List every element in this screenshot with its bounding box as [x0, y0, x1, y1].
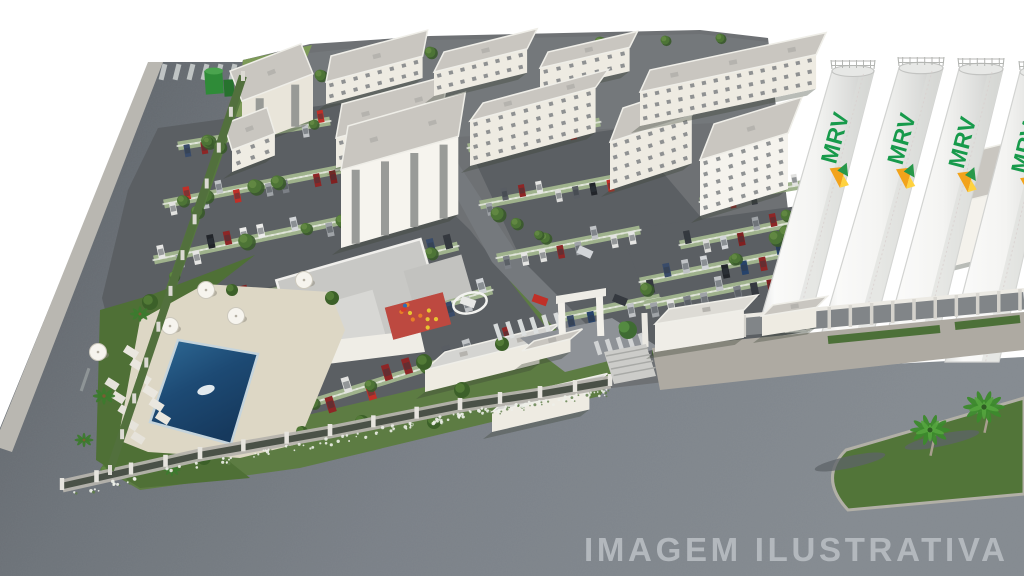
svg-text:IMAGEM ILUSTRATIVA: IMAGEM ILUSTRATIVA	[584, 531, 1009, 568]
